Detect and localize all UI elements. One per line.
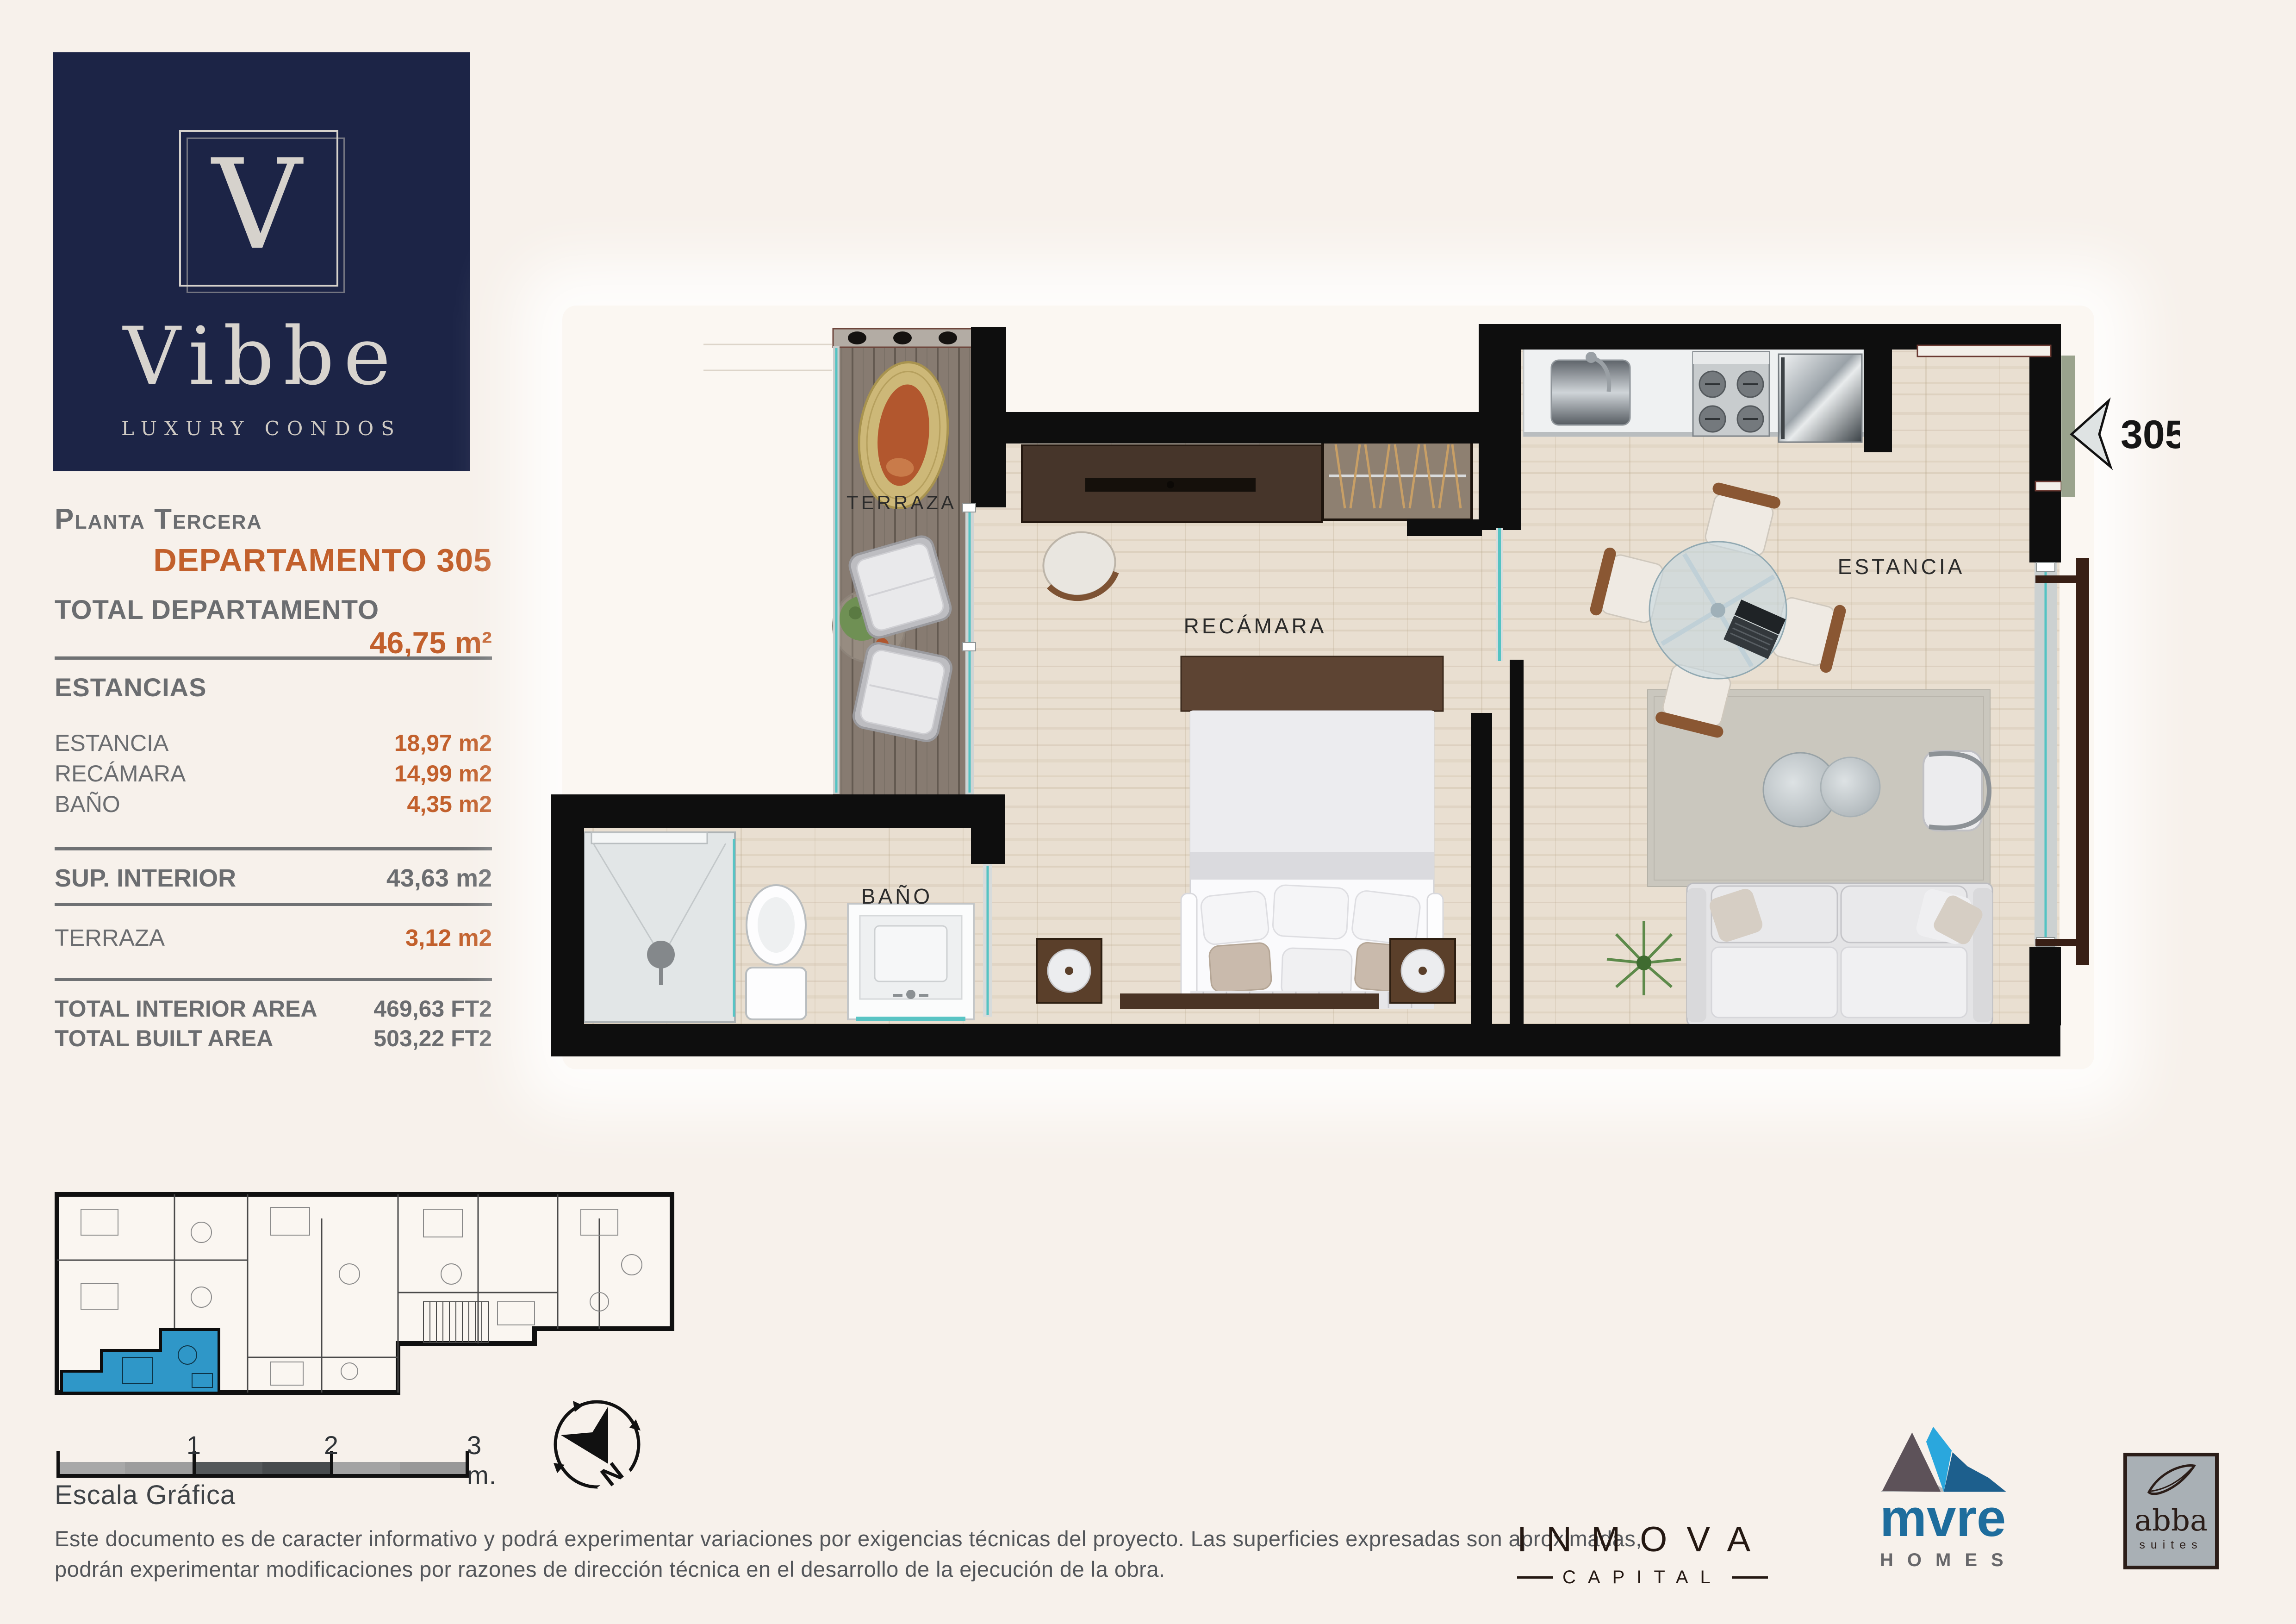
scale-title: Escala Gráfica <box>55 1480 236 1511</box>
terrace-row: TERRAZA 3,12 m2 <box>55 924 492 951</box>
mvre-sub: HOMES <box>1873 1550 2012 1571</box>
stove <box>1693 352 1769 436</box>
disclaimer-line-1: Este documento es de caracter informativ… <box>55 1526 1642 1551</box>
room-value: 4,35 m2 <box>407 791 492 818</box>
room-label: ESTANCIA <box>55 730 168 756</box>
mvre-mountain-icon <box>1876 1426 2010 1496</box>
room-row: ESTANCIA 18,97 m2 <box>55 730 492 756</box>
total-row: TOTAL INTERIOR AREA 469,63 FT2 <box>55 995 492 1022</box>
guide-lines <box>703 344 832 370</box>
disclaimer-line-2: podrán experimentar modificaciones por r… <box>55 1556 1165 1582</box>
entry-arrow-icon <box>2072 401 2110 467</box>
inmova-logo: INMOVA CAPITAL <box>1517 1519 1776 1588</box>
total-row-value: 503,22 FT2 <box>373 1025 492 1052</box>
scale-bar: 1 2 3 m. <box>56 1433 538 1479</box>
room-value: 14,99 m2 <box>394 760 492 787</box>
room-label: RECÁMARA <box>55 760 186 787</box>
logo-v-icon: V <box>179 122 335 288</box>
total-label: TOTAL DEPARTAMENTO <box>55 594 492 625</box>
kitchen-cabinet <box>1864 348 1892 452</box>
label-recamara: RECÁMARA <box>1184 614 1327 638</box>
total-row: TOTAL BUILT AREA 503,22 FT2 <box>55 1025 492 1052</box>
scale-tick-3: 3 m. <box>467 1430 514 1490</box>
kitchen-sink <box>1551 360 1630 425</box>
unit-title: DEPARTAMENTO 305 <box>55 542 492 579</box>
toilet <box>746 885 806 1019</box>
headboard <box>1120 993 1379 1009</box>
mvre-name: mvre <box>1873 1495 2012 1543</box>
floor-plan: TERRAZA RECÁMARA BAÑO ESTANCIA 305 <box>532 278 2180 1111</box>
brand-name: Vibbe <box>53 310 470 403</box>
label-terraza: TERRAZA <box>846 492 957 513</box>
vanity <box>848 904 974 1021</box>
label-bano: BAÑO <box>861 884 933 908</box>
abba-sub: suites <box>2127 1538 2215 1552</box>
shower <box>584 832 735 1022</box>
wall <box>551 794 584 1056</box>
coffee-table <box>1821 757 1880 817</box>
nightstand <box>1037 939 1101 1003</box>
terrace-value: 3,12 m2 <box>405 924 492 951</box>
room-label: BAÑO <box>55 791 120 818</box>
closet <box>1022 433 1472 522</box>
total-row-label: TOTAL INTERIOR AREA <box>55 995 317 1022</box>
total-row-label: TOTAL BUILT AREA <box>55 1025 273 1052</box>
scale-tick-2: 2 <box>324 1430 339 1460</box>
brand-tagline: LUXURY CONDOS <box>53 417 470 440</box>
unit-marker: 305 <box>2072 401 2180 467</box>
compass: N <box>541 1393 656 1501</box>
wall <box>1479 324 1521 530</box>
abba-name: abba <box>2127 1506 2215 1536</box>
nightstand <box>1390 939 1455 1003</box>
inmova-sub: CAPITAL <box>1562 1567 1723 1588</box>
wall <box>551 1024 2060 1056</box>
dash-left <box>1517 1576 1553 1579</box>
abba-logo: abba suites <box>2123 1453 2219 1569</box>
divider <box>55 978 492 981</box>
wall <box>1510 660 1524 1024</box>
terrace-armchair <box>852 641 954 743</box>
sofa <box>1687 883 1992 1026</box>
room-row: BAÑO 4,35 m2 <box>55 791 492 818</box>
unit-number: 305 <box>2121 412 2180 457</box>
wall <box>2029 324 2061 562</box>
wall <box>971 327 1006 507</box>
terrace-label: TERRAZA <box>55 924 165 951</box>
bed-bench <box>1181 656 1443 711</box>
divider <box>55 847 492 850</box>
floorplan-sheet: V Vibbe LUXURY CONDOS Planta Tercera DEP… <box>0 0 2296 1624</box>
scale-baseline <box>56 1474 469 1478</box>
window-sill <box>1917 345 2051 356</box>
room-value: 18,97 m2 <box>394 730 492 756</box>
divider <box>55 903 492 906</box>
interior-label: SUP. INTERIOR <box>55 864 236 893</box>
floor-title: Planta Tercera <box>55 503 492 536</box>
mvre-logo: mvre HOMES <box>1873 1426 2012 1571</box>
total-value: 46,75 m² <box>55 625 492 660</box>
interior-row: SUP. INTERIOR 43,63 m2 <box>55 864 492 893</box>
key-plan <box>53 1191 676 1395</box>
entry-door <box>2061 356 2075 497</box>
dash-right <box>1732 1576 1768 1579</box>
interior-value: 43,63 m2 <box>386 864 492 893</box>
inmova-name: INMOVA <box>1517 1519 1776 1560</box>
kitchen <box>1524 348 1864 442</box>
fridge <box>1779 354 1862 442</box>
wall <box>1407 519 1482 536</box>
label-estancia: ESTANCIA <box>1838 555 1965 579</box>
wall <box>1005 412 1482 443</box>
abba-leaf-icon <box>2143 1462 2199 1505</box>
accent-chair <box>1923 751 1989 831</box>
scale-tick-1: 1 <box>187 1430 201 1460</box>
total-row-value: 469,63 FT2 <box>373 995 492 1022</box>
divider <box>55 656 492 660</box>
wall <box>2029 947 2061 1025</box>
room-row: RECÁMARA 14,99 m2 <box>55 760 492 787</box>
wall <box>1471 713 1492 1024</box>
sections-title: ESTANCIAS <box>55 672 492 702</box>
window-sill <box>2035 481 2061 491</box>
wall <box>551 794 986 828</box>
brand-card: V Vibbe LUXURY CONDOS <box>53 52 470 471</box>
wall <box>971 794 1005 864</box>
